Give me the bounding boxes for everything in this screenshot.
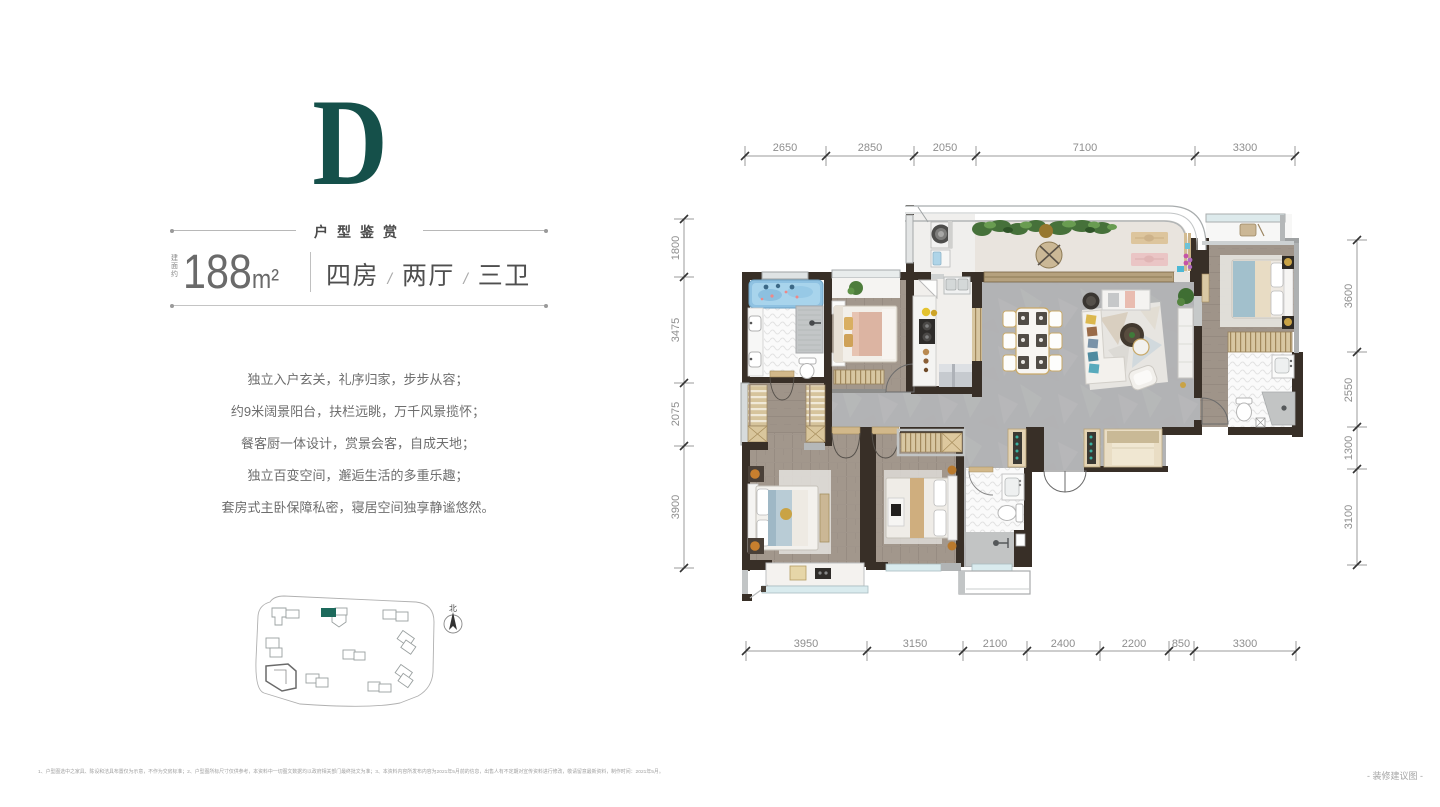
svg-text:3150: 3150 [903,638,927,650]
svg-text:7100: 7100 [1073,142,1097,154]
svg-text:2400: 2400 [1051,638,1075,650]
svg-text:2100: 2100 [983,638,1007,650]
svg-text:3475: 3475 [670,318,682,342]
svg-text:2050: 2050 [933,142,957,154]
svg-text:1800: 1800 [670,236,682,260]
svg-text:1300: 1300 [1343,436,1355,460]
svg-text:2075: 2075 [670,402,682,426]
svg-text:2850: 2850 [858,142,882,154]
svg-text:3600: 3600 [1343,284,1355,308]
svg-text:3300: 3300 [1233,638,1257,650]
svg-text:850: 850 [1172,638,1190,650]
svg-text:3950: 3950 [794,638,818,650]
svg-text:3100: 3100 [1343,505,1355,529]
svg-text:3900: 3900 [670,495,682,519]
svg-text:2200: 2200 [1122,638,1146,650]
svg-text:3300: 3300 [1233,142,1257,154]
svg-text:2550: 2550 [1343,378,1355,402]
svg-text:2650: 2650 [773,142,797,154]
